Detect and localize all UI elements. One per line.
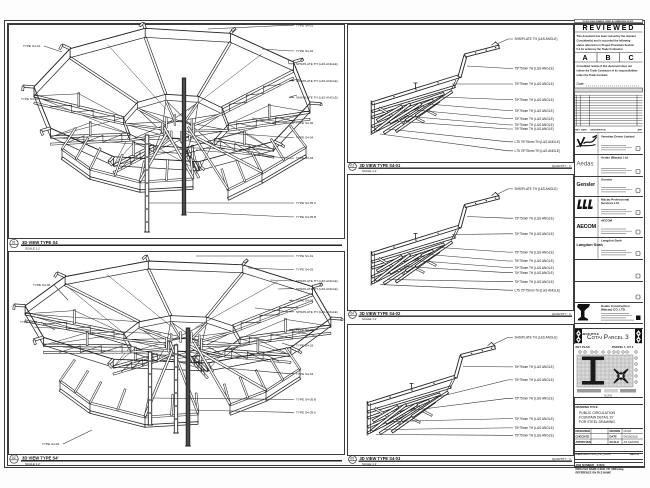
svg-text:Consultant review of this: Consultant review of this document does …	[577, 64, 633, 68]
svg-text:75*75mm TH (L&S ANGLE): 75*75mm TH (L&S ANGLE)	[515, 397, 554, 401]
svg-text:PUBLIC CIRCULATION: PUBLIC CIRCULATION	[579, 411, 615, 415]
svg-text:Gensler: Gensler	[601, 178, 613, 182]
svg-text:DRAWN: DRAWN	[610, 429, 621, 433]
svg-text:QUANTITY : 4: QUANTITY : 4	[552, 456, 571, 460]
svg-text:SCALE: SCALE	[610, 440, 620, 444]
svg-text:DESCRIPTION: DESCRIPTION	[591, 130, 606, 132]
svg-text:Aedas (Macau) Ltd.: Aedas (Macau) Ltd.	[601, 155, 629, 159]
svg-text:CKAD: CKAD	[624, 429, 632, 433]
svg-text:This document has been rev: This document has been revised by the re…	[577, 34, 636, 38]
svg-text:APP: APP	[638, 129, 643, 132]
svg-text:75*75mm TH (L&S ANGLE): 75*75mm TH (L&S ANGLE)	[515, 426, 554, 430]
svg-text:75*75mm TH (L&S ANGLE): 75*75mm TH (L&S ANGLE)	[515, 434, 554, 438]
svg-text:Aedas: Aedas	[577, 161, 594, 167]
svg-text:FOUNTAIN DETAIL 3Y: FOUNTAIN DETAIL 3Y	[579, 416, 614, 420]
svg-text:Date :: Date :	[577, 82, 586, 86]
svg-text:APPROVED: APPROVED	[576, 440, 592, 444]
svg-text:relieve the Trade Contracto: relieve the Trade Contractor of its resp…	[577, 68, 639, 72]
svg-text:04/10/2010: 04/10/2010	[624, 434, 638, 438]
svg-text:R E V I E W E D: R E V I E W E D	[583, 25, 634, 32]
svg-text:(Macau) CO, LTD.: (Macau) CO, LTD.	[601, 307, 626, 311]
svg-text:Venetian Orient Limited: Venetian Orient Limited	[601, 135, 635, 139]
svg-text:FOR STEEL DRAWING: FOR STEEL DRAWING	[579, 420, 615, 424]
svg-text:REFERENCE ON FILE NAME: REFERENCE ON FILE NAME	[576, 471, 612, 475]
svg-text:DESIGNED: DESIGNED	[576, 429, 591, 433]
svg-text:DATE: DATE	[610, 434, 618, 438]
svg-text:DRAWING TITLE: DRAWING TITLE	[576, 405, 598, 409]
svg-text:A: A	[582, 55, 587, 62]
svg-text:-: -	[598, 440, 599, 444]
svg-text:Consultant(s) and is accord: Consultant(s) and is accorded the follow…	[577, 38, 631, 42]
svg-text:SHS/PLATE TH (L&S ANGLE): SHS/PLATE TH (L&S ANGLE)	[515, 336, 558, 340]
svg-text:AS SHOWN: AS SHOWN	[624, 440, 639, 444]
svg-text:B: B	[605, 55, 610, 62]
svg-text:-: -	[598, 434, 599, 438]
svg-text:75*75mm TH (L&S ANGLE): 75*75mm TH (L&S ANGLE)	[515, 417, 554, 421]
svg-text:Langdon Seah: Langdon Seah	[601, 239, 622, 243]
svg-text:75*75mm TH (L&S ANGLE): 75*75mm TH (L&S ANGLE)	[515, 365, 554, 369]
svg-text:DATE: DATE	[581, 129, 587, 132]
svg-text:DO NOT SCALE DRAWING, VERIFY A: DO NOT SCALE DRAWING, VERIFY ALL DIMENSI…	[583, 20, 634, 23]
svg-text:C: C	[628, 55, 633, 62]
svg-text:status referred to in Proj: status referred to in Project Procedure …	[577, 43, 635, 47]
svg-text:SCALE: SCALE	[604, 394, 613, 397]
svg-text:AECOM: AECOM	[601, 219, 613, 223]
svg-text:SCALE 1:2: SCALE 1:2	[362, 462, 377, 466]
svg-text:COTAI PARCEL 3: COTAI PARCEL 3	[587, 333, 629, 340]
svg-text:REV: REV	[575, 130, 580, 132]
svg-text:3D VIEW TYPE S4-03: 3D VIEW TYPE S4-03	[359, 456, 400, 461]
svg-text:Langdon·Seah: Langdon·Seah	[577, 243, 604, 247]
svg-text:Services Ltd.: Services Ltd.	[601, 201, 620, 205]
svg-text:PARCEL 1, OT 3: PARCEL 1, OT 3	[612, 345, 634, 349]
svg-text:CHECKED: CHECKED	[576, 434, 590, 438]
svg-text:KEY PLAN: KEY PLAN	[576, 345, 590, 349]
svg-text:AECOM: AECOM	[577, 224, 597, 230]
svg-text:5.4 for action by the Tra: 5.4 for action by the Trade Contractor.	[577, 47, 624, 51]
svg-text:05: 05	[350, 456, 354, 460]
svg-text:75*75mm TH (L&S ANGLE): 75*75mm TH (L&S ANGLE)	[515, 378, 554, 382]
svg-text:under the Trade Contract.: under the Trade Contract.	[577, 73, 609, 77]
svg-text:Gensler: Gensler	[577, 182, 596, 188]
